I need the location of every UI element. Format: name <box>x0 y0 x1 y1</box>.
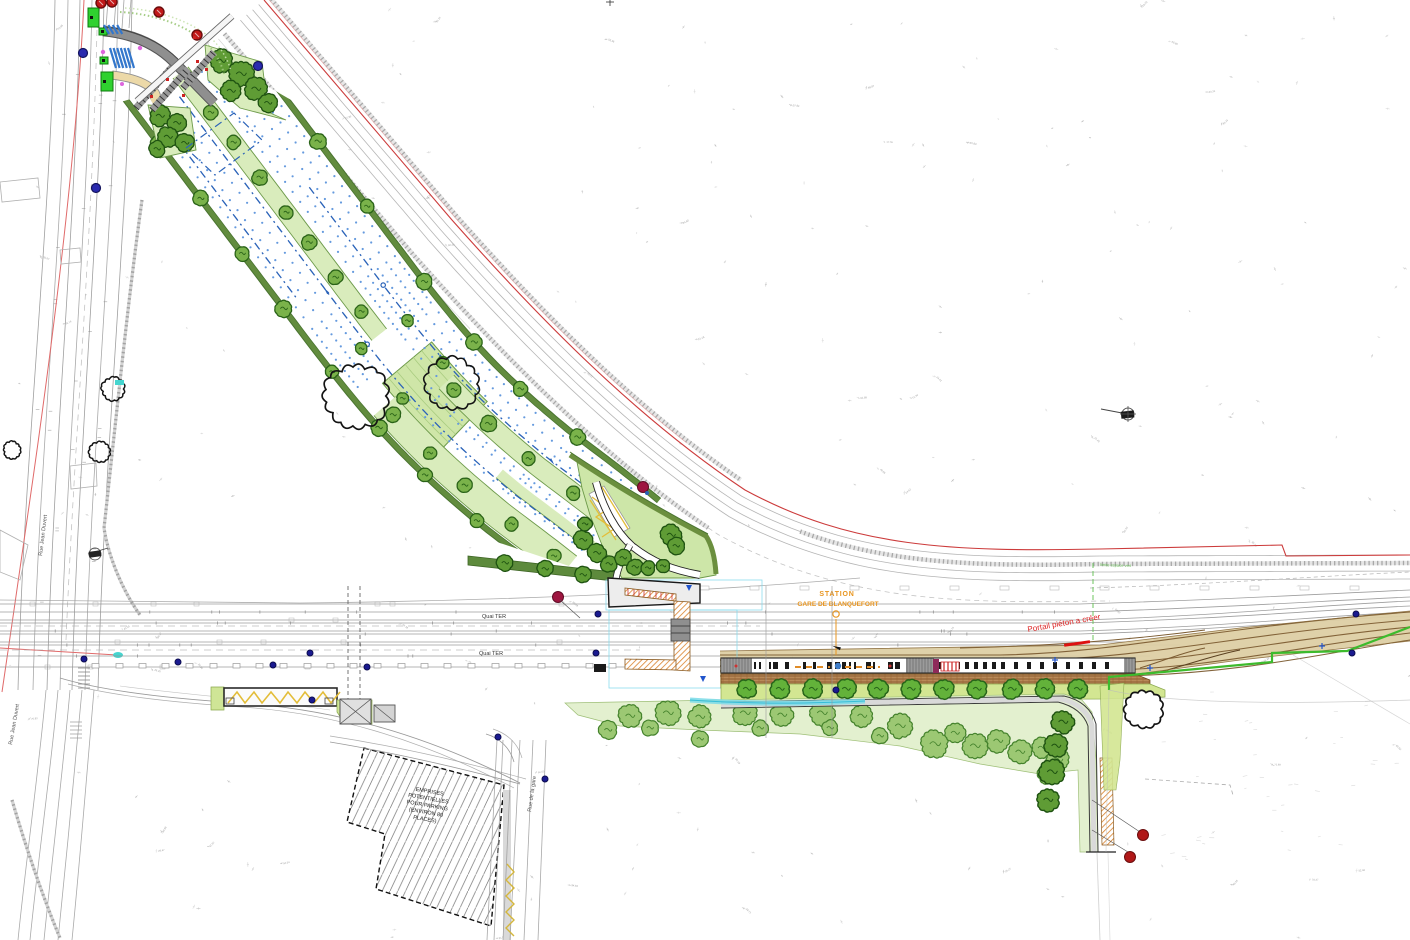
svg-text:GARE DE BLANQUEFORT: GARE DE BLANQUEFORT <box>797 601 878 608</box>
svg-text:76.93: 76.93 <box>31 716 38 721</box>
svg-text:Quai TER: Quai TER <box>482 614 506 620</box>
svg-text:78.37: 78.37 <box>1312 878 1319 882</box>
svg-text:57.84: 57.84 <box>793 103 800 108</box>
svg-text:52.46: 52.46 <box>1358 868 1365 873</box>
svg-text:STATION: STATION <box>819 591 854 598</box>
svg-text:Quai TER: Quai TER <box>479 651 503 657</box>
svg-text:17.55: 17.55 <box>886 140 893 144</box>
svg-text:91.89: 91.89 <box>860 395 867 400</box>
svg-text:75.69: 75.69 <box>1274 763 1281 767</box>
